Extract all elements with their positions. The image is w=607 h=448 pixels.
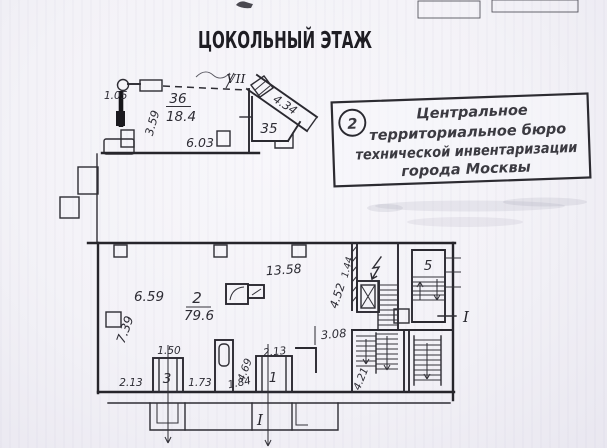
room2-number: 2 <box>192 289 202 307</box>
room3-number: 3 <box>163 371 172 387</box>
stair-arrow-down <box>384 336 390 370</box>
upper-floorplan: 1.05 3.59 36 18.4 6.03 VII 4.34 35 <box>60 71 317 243</box>
bti-stamp: 2 Центральное территориальное бюро техни… <box>332 94 591 187</box>
dim-duct: 4.69 <box>236 357 255 383</box>
section-mark-bottom: I <box>256 411 264 429</box>
dim-left-vert: 7.39 <box>113 314 137 345</box>
elevator-shaft-icon <box>357 281 379 312</box>
dim-door: 1.05 <box>104 90 128 102</box>
stove-symbol <box>226 284 264 304</box>
wall-column <box>217 131 230 146</box>
stair-landing <box>394 309 409 323</box>
room1-number: 1 <box>269 370 278 386</box>
stair-arrow-down <box>424 343 430 379</box>
dim-wall: 1.44 <box>340 256 356 279</box>
main-floorplan: 13.58 6.59 2 79.6 7.39 4.52 3.08 1.44 5 … <box>88 243 470 446</box>
page-title: ЦОКОЛЬНЫЙ ЭТАЖ <box>198 26 372 54</box>
lightning-icon <box>371 257 381 279</box>
dim-opening: 3.08 <box>320 326 347 342</box>
dim-room3-width: 1.50 <box>157 345 181 357</box>
stair-treads <box>378 285 398 325</box>
smudge-text <box>367 198 587 228</box>
room2-area: 79.6 <box>184 308 214 324</box>
room35-number: 35 <box>260 121 277 137</box>
room36-number: 36 <box>169 91 186 107</box>
dim-top: 13.58 <box>265 261 302 278</box>
foundation-pits <box>150 403 338 430</box>
room36-area: 18.4 <box>166 109 196 125</box>
dim-seg-left: 2.13 <box>119 377 142 389</box>
dim-room1-width: 2.13 <box>262 345 287 359</box>
window-block <box>140 80 162 91</box>
section-mark-right: I <box>462 308 470 326</box>
torn-mark <box>236 1 253 8</box>
dim-right-vert: 4.52 <box>327 281 348 310</box>
dim-left: 3.59 <box>142 109 163 137</box>
lower-stairs <box>356 330 441 392</box>
wall-pier <box>116 111 125 126</box>
dim-diagonal: 4.34 <box>271 92 300 118</box>
dashed-line <box>163 86 246 90</box>
corridor-mark: VII <box>227 71 247 86</box>
dim-seg-mid: 1.73 <box>188 377 211 389</box>
scanned-floorplan-page: ЦОКОЛЬНЫЙ ЭТАЖ 1 <box>0 0 607 448</box>
dim-bottom: 6.03 <box>186 135 214 150</box>
room5-number: 5 <box>424 258 433 274</box>
dim-stair: 4.21 <box>351 366 371 392</box>
dim-left: 6.59 <box>134 289 164 305</box>
door-pivot-icon <box>118 80 129 91</box>
stamp-number: 2 <box>347 117 358 133</box>
